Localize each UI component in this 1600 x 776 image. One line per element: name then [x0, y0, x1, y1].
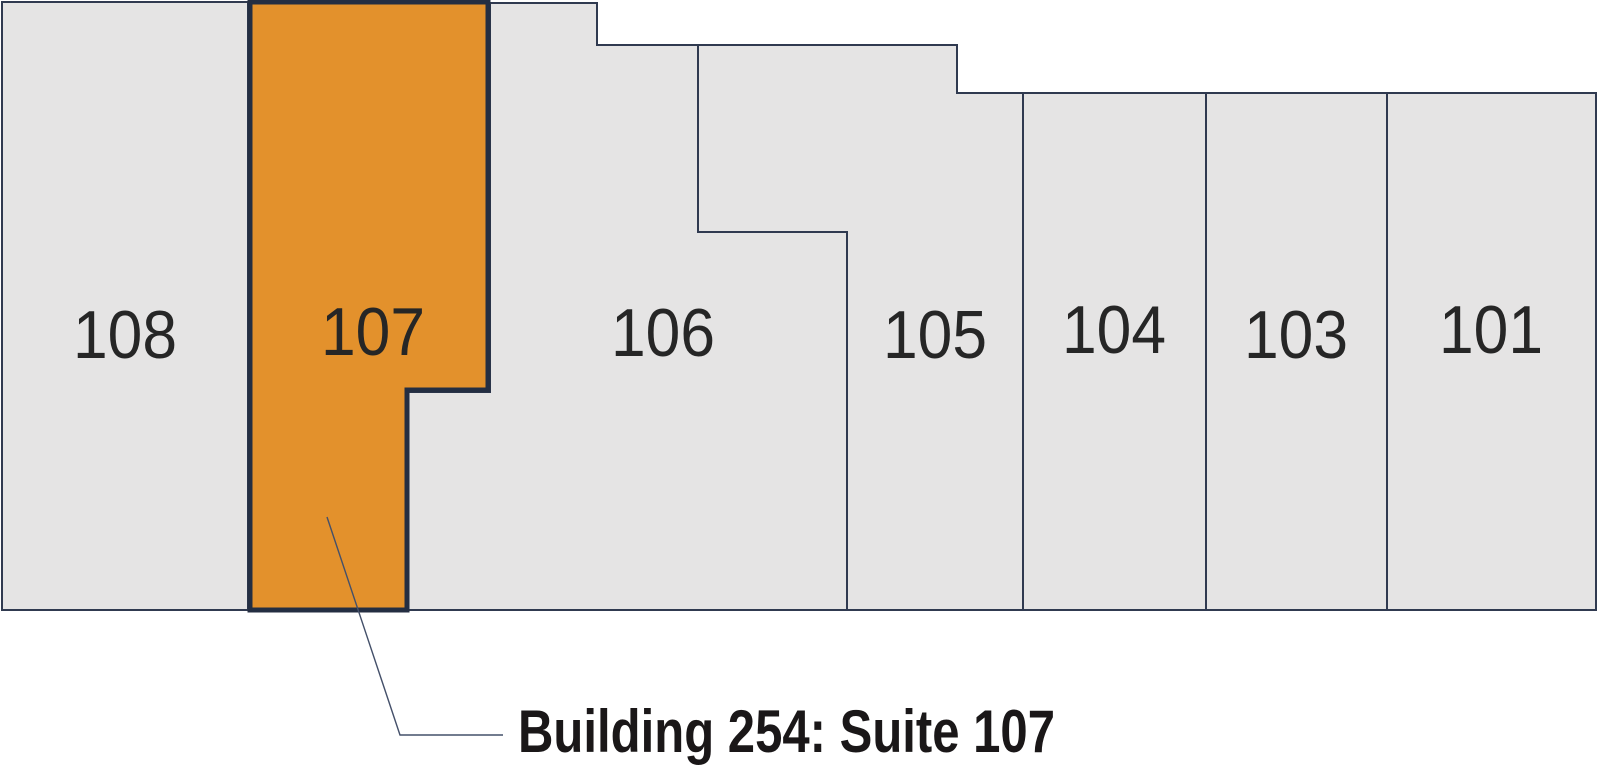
suite-101-label: 101	[1439, 292, 1543, 368]
suite-106-label: 106	[611, 295, 715, 371]
floor-plan: 108 107 106 105 104 103 101 Building 254…	[0, 0, 1600, 776]
suite-108-label: 108	[73, 297, 177, 373]
suite-103-label: 103	[1244, 297, 1348, 373]
suite-104-label: 104	[1062, 292, 1166, 368]
floor-plan-canvas: 108 107 106 105 104 103 101 Building 254…	[0, 0, 1600, 776]
suite-107-label: 107	[321, 294, 425, 370]
suite-105-label: 105	[883, 297, 987, 373]
callout-text: Building 254: Suite 107	[518, 698, 1055, 765]
